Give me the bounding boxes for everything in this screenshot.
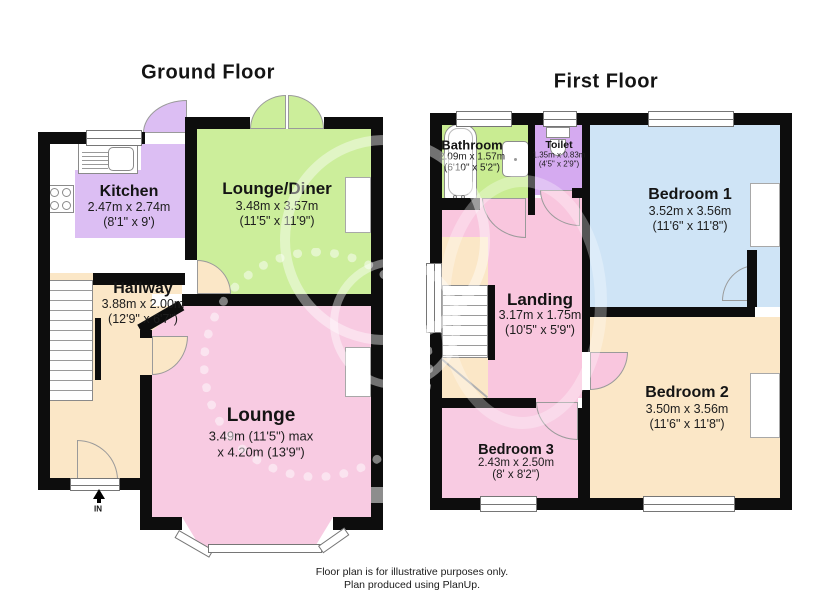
bedroom1-door-threshold	[755, 307, 780, 317]
bedroom2-label: Bedroom 2	[645, 384, 729, 402]
bathroom-dims-metric: 2.09m x 1.57m	[439, 152, 505, 163]
sink-bowl	[108, 147, 134, 171]
wall	[528, 125, 535, 215]
bathroom-window	[456, 111, 512, 127]
wall	[488, 285, 495, 360]
wall	[747, 250, 757, 307]
hob-burner	[50, 188, 59, 197]
wall	[442, 198, 480, 210]
bedroom3-dims-metric: 2.43m x 2.50m	[478, 457, 554, 469]
wall	[95, 318, 101, 380]
wall	[140, 517, 182, 530]
toilet-dims-metric: 1.35m x 0.83m	[533, 151, 586, 160]
kitchen-label: Kitchen	[100, 183, 159, 201]
wall	[582, 307, 590, 352]
bedroom2-dims-metric: 3.50m x 3.56m	[646, 402, 729, 416]
washbasin-drain	[514, 158, 517, 161]
hob-burner	[62, 201, 71, 210]
bedroom3-window	[480, 496, 537, 512]
floor-plan-page: Ground Floor Kitchen 2.47m x 2.74m (8'1"…	[0, 0, 825, 600]
hallway-dims-metric: 3.88m x 2.00m	[102, 297, 185, 311]
wall	[185, 117, 197, 260]
entrance-arrow-stem	[97, 498, 101, 503]
hallway-dims-imperial: (12'9" x 6'7")	[108, 312, 178, 326]
staircase-ground	[48, 280, 93, 401]
ground-floor-title: Ground Floor	[141, 62, 275, 85]
wall-vent	[371, 487, 383, 503]
toilet-label: Toilet	[545, 139, 572, 151]
toilet-dims-imperial: (4'5" x 2'9")	[539, 160, 579, 169]
bedroom1-dims-metric: 3.52m x 3.56m	[649, 204, 732, 218]
landing-dims-imperial: (10'5" x 5'9")	[505, 323, 575, 337]
wall	[582, 390, 590, 408]
bedroom1-label: Bedroom 1	[648, 186, 732, 204]
lounge-label: Lounge	[227, 405, 296, 427]
bedroom1-window	[648, 111, 734, 127]
bedroom3-dims-imperial: (8' x 8'2")	[492, 469, 539, 481]
chimney-alcove-bedroom1	[750, 183, 780, 247]
bedroom2-dims-imperial: (11'6" x 11'8")	[649, 417, 724, 431]
wall	[590, 307, 755, 317]
landing-window	[426, 263, 442, 333]
wall	[189, 117, 250, 129]
lounge-dims-metric: 3.49m (11'5") max	[209, 429, 313, 444]
hob-burner	[50, 201, 59, 210]
sink-drainer	[82, 149, 108, 169]
bathroom-label: Bathroom	[441, 138, 502, 153]
hallway-label: Hallway	[113, 280, 173, 298]
toilet-cistern	[546, 127, 570, 138]
french-door-arc-left	[250, 95, 286, 129]
stair-landing-top	[442, 237, 488, 285]
bathroom-dims-imperial: (6'10" x 5'2")	[444, 163, 500, 174]
chimney-alcove-bedroom2	[750, 373, 780, 438]
landing-dims-metric: 3.17m x 1.75m	[499, 308, 582, 322]
wall	[140, 375, 152, 517]
kitchen-dims-metric: 2.47m x 2.74m	[88, 200, 171, 214]
lounge-diner-dims-metric: 3.48m x 3.57m	[236, 199, 319, 213]
bedroom3-label: Bedroom 3	[478, 442, 554, 458]
wall	[780, 113, 792, 510]
kitchen-window	[86, 130, 142, 146]
wall	[572, 188, 582, 198]
first-floor-title: First Floor	[554, 71, 658, 94]
footer-credit: Plan produced using PlanUp.	[344, 579, 480, 591]
landing-label: Landing	[507, 290, 573, 310]
wall	[333, 517, 383, 530]
wall	[442, 398, 536, 408]
bay-window-center	[208, 544, 322, 553]
back-door-arc	[143, 100, 187, 133]
chimney-alcove-lounge	[345, 347, 371, 397]
wall	[182, 294, 371, 306]
toilet-window	[543, 111, 577, 127]
bedroom1-dims-imperial: (11'6" x 11'8")	[652, 219, 727, 233]
chimney-alcove-lounge-diner	[345, 177, 371, 233]
lounge-diner-label: Lounge/Diner	[222, 179, 332, 199]
hob-burner	[62, 188, 71, 197]
staircase-first	[442, 285, 488, 358]
wall	[38, 132, 50, 490]
wall	[578, 408, 590, 498]
lounge-diner-dims-imperial: (11'5" x 11'9")	[239, 214, 314, 228]
french-door-arc-right	[288, 95, 324, 129]
wall	[371, 117, 383, 530]
lounge-dims-imperial: x 4.20m (13'9")	[217, 445, 304, 460]
bedroom2-window	[643, 496, 735, 512]
entrance-in-label: IN	[94, 505, 102, 514]
footer-disclaimer: Floor plan is for illustrative purposes …	[316, 566, 508, 578]
kitchen-dims-imperial: (8'1" x 9')	[103, 215, 155, 229]
